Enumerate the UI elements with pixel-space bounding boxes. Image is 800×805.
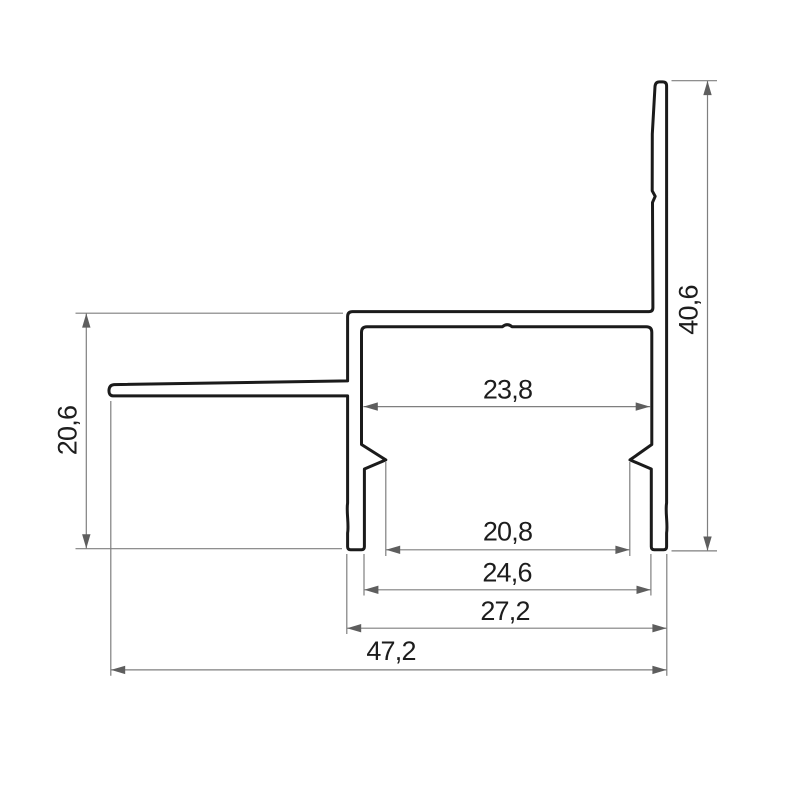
svg-text:24,6: 24,6: [482, 558, 531, 588]
svg-text:27,2: 27,2: [480, 596, 529, 626]
svg-text:40,6: 40,6: [674, 285, 704, 334]
svg-text:20,6: 20,6: [53, 406, 83, 455]
svg-text:23,8: 23,8: [483, 374, 532, 404]
svg-text:47,2: 47,2: [366, 636, 415, 666]
svg-text:20,8: 20,8: [483, 517, 532, 547]
